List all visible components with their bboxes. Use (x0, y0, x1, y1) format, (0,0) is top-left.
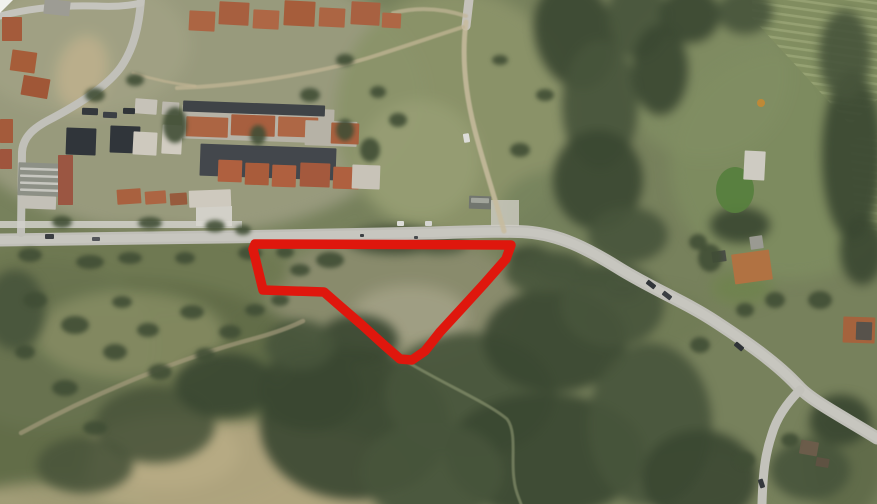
field-shed-roof (471, 198, 489, 204)
house-orange (170, 192, 188, 205)
tree (290, 264, 310, 276)
tree (205, 220, 225, 232)
car (45, 234, 54, 239)
apartment-orange-roof (300, 162, 331, 187)
tree (137, 323, 159, 337)
truck (103, 112, 117, 118)
tree (492, 55, 508, 65)
pedestrian (360, 234, 364, 237)
tree (316, 252, 344, 268)
tree (300, 88, 320, 102)
house-orange (188, 10, 215, 31)
tree (118, 252, 142, 264)
house-orange (319, 7, 346, 27)
tree (389, 113, 407, 127)
tree (175, 252, 195, 264)
tree (85, 88, 105, 102)
house-white (135, 98, 158, 114)
tree (235, 225, 251, 235)
tree (510, 143, 530, 157)
tree (138, 217, 162, 229)
forest-patch (505, 250, 585, 294)
forest-patch (265, 320, 335, 370)
tree (336, 54, 354, 66)
tree (126, 74, 144, 86)
tree (15, 345, 35, 359)
house-orange (382, 13, 402, 29)
tree (52, 380, 78, 396)
truck (82, 108, 98, 116)
villa-orange-roof (731, 250, 773, 285)
apartment-white-end (352, 165, 381, 190)
pedestrian (414, 236, 418, 239)
tree (690, 337, 710, 353)
tree (83, 421, 107, 435)
apartment-orange-roof (186, 116, 229, 137)
autumn-tree (757, 99, 765, 107)
tree (689, 234, 707, 250)
tree (112, 296, 132, 308)
tree (250, 125, 266, 145)
satellite-aerial-image (0, 0, 877, 504)
tree (735, 452, 755, 468)
apartment-orange-roof (245, 163, 270, 186)
villa-shed (749, 235, 764, 250)
red-building (58, 155, 73, 205)
tree (765, 292, 785, 308)
tree (336, 119, 354, 141)
satellite-image-viewport (0, 0, 877, 504)
forest-patch (37, 437, 133, 493)
tree (52, 216, 72, 228)
house-orange (350, 1, 380, 25)
solar-roof-block (66, 127, 97, 155)
tree (61, 316, 89, 334)
house-orange (0, 149, 12, 169)
apartment-orange-roof (272, 165, 297, 188)
tree (360, 138, 380, 162)
house-orange (117, 188, 142, 205)
tree (163, 107, 187, 143)
house-orange (0, 119, 13, 143)
house-white-tr (743, 150, 765, 180)
house-orange (2, 17, 22, 41)
house-orange (283, 0, 315, 27)
house-orange-se-dark (856, 322, 873, 341)
parked-car-white (397, 221, 404, 226)
forest-patch (819, 10, 871, 100)
tree (781, 433, 799, 447)
house-white (132, 131, 157, 155)
tree (271, 294, 289, 306)
house-white-large (189, 189, 232, 207)
house-white (20, 195, 56, 209)
truck (123, 108, 135, 114)
tree (536, 89, 554, 101)
house-white (43, 0, 70, 16)
tree (180, 305, 204, 319)
tree (76, 255, 104, 269)
top-center-light (360, 100, 480, 220)
tree (103, 344, 127, 360)
apartment-orange-roof (218, 160, 243, 183)
tree (219, 325, 241, 339)
tree (18, 248, 42, 262)
tree (23, 292, 47, 308)
tree (808, 291, 832, 309)
house-orange (145, 190, 167, 204)
house-orange (253, 9, 280, 29)
tree (195, 348, 215, 362)
parked-car-white (425, 221, 432, 226)
tree (736, 303, 754, 317)
house-orange (218, 1, 249, 26)
tree (148, 364, 172, 380)
car (92, 237, 100, 241)
tree (245, 304, 265, 316)
house-orange (10, 49, 38, 73)
forest-patch (175, 353, 275, 417)
tree (370, 86, 386, 98)
